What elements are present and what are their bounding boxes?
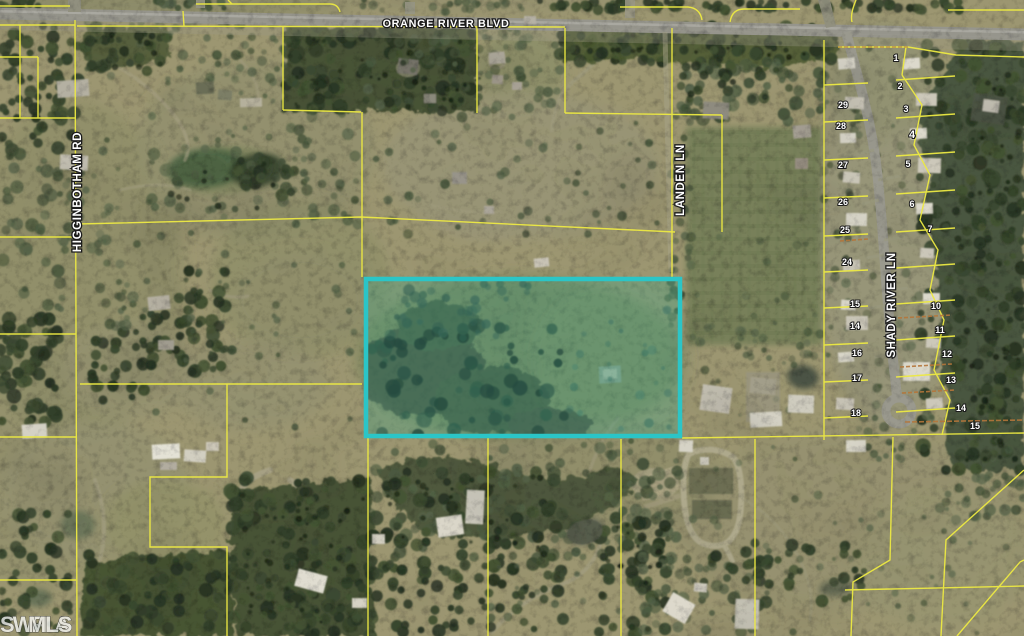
svg-text:13: 13	[946, 375, 956, 385]
svg-text:3: 3	[903, 104, 908, 114]
svg-text:LANDEN LN: LANDEN LN	[675, 144, 687, 216]
svg-text:HIGGINBOTHAM RD: HIGGINBOTHAM RD	[72, 132, 84, 252]
svg-text:ORANGE RIVER BLVD: ORANGE RIVER BLVD	[383, 18, 510, 30]
svg-text:15: 15	[850, 299, 860, 309]
svg-text:14: 14	[956, 403, 966, 413]
svg-text:4: 4	[909, 129, 916, 141]
svg-text:14: 14	[850, 321, 860, 331]
svg-text:MLS: MLS	[28, 612, 72, 636]
svg-text:17: 17	[852, 373, 862, 383]
svg-text:25: 25	[840, 225, 850, 235]
svg-text:2: 2	[897, 81, 902, 91]
svg-text:27: 27	[838, 160, 848, 170]
svg-text:15: 15	[970, 421, 980, 431]
svg-text:24: 24	[842, 257, 852, 267]
svg-text:7: 7	[927, 224, 932, 234]
svg-text:26: 26	[838, 197, 848, 207]
svg-text:1: 1	[893, 53, 898, 63]
svg-text:11: 11	[935, 325, 945, 335]
svg-text:6: 6	[909, 199, 914, 209]
svg-text:5: 5	[905, 159, 910, 169]
svg-text:29: 29	[838, 100, 848, 110]
svg-text:SHADY RIVER LN: SHADY RIVER LN	[886, 252, 898, 357]
svg-text:12: 12	[942, 349, 952, 359]
svg-text:28: 28	[836, 121, 846, 131]
svg-text:10: 10	[931, 301, 941, 311]
svg-text:16: 16	[852, 348, 862, 358]
svg-text:18: 18	[851, 408, 861, 418]
